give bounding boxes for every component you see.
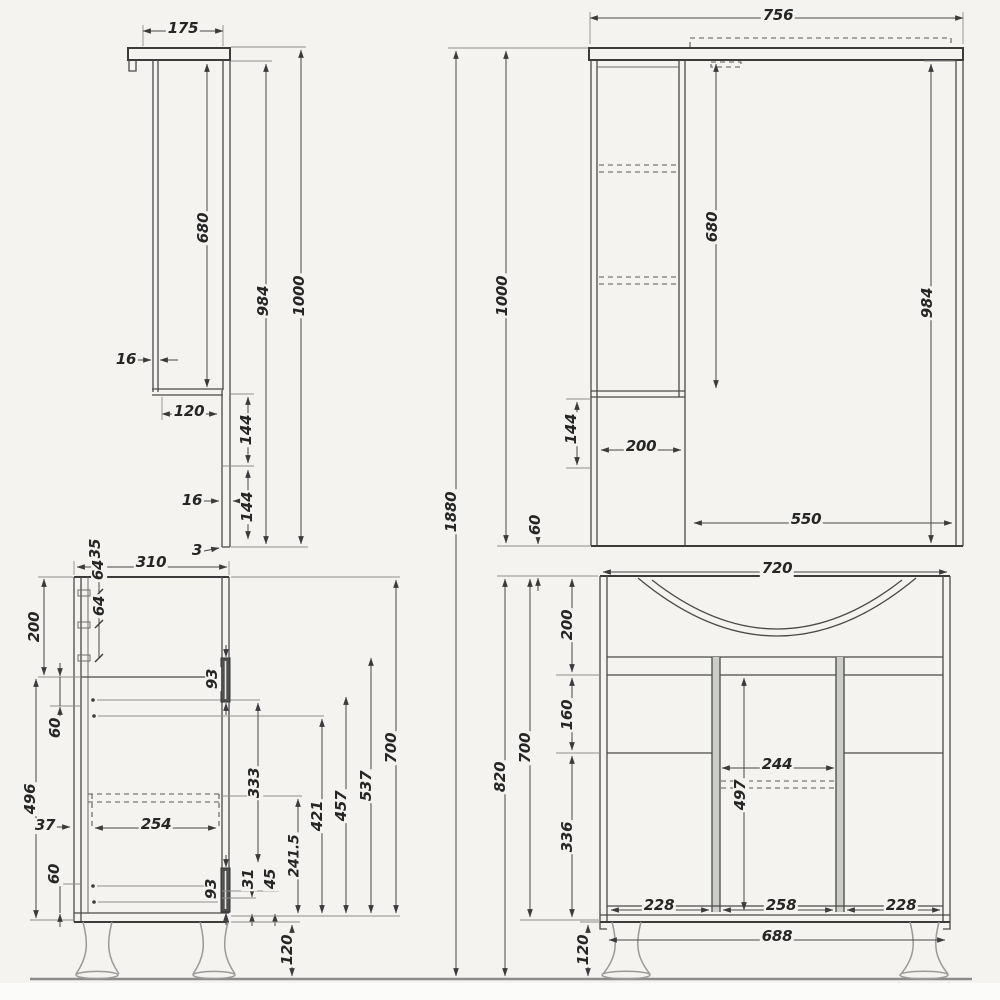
dim-vs-gap-60-upper: 60 [48,716,64,740]
dim-ms-wall-thickness: 16 [114,352,138,368]
dim-vs-top-section: 200 [27,610,43,644]
dim-set-total-height: 1880 [444,490,460,535]
dim-vs-333: 333 [247,766,263,800]
dim-vs-drawer-depth: 254 [139,817,173,833]
dim-mf-cabinet-width: 200 [624,439,658,455]
vanity-side-view [30,552,400,979]
dim-mf-width: 756 [761,8,795,24]
dim-vs-hinge-top: 93 [205,667,221,691]
drawing-linework [0,0,1000,1000]
dim-ms-width: 175 [166,21,200,37]
dim-ms-cabinet-height: 680 [196,211,212,245]
dim-vs-496: 496 [23,782,39,816]
dim-vs-31: 31 [241,867,257,891]
dim-mf-below-cabinet: 144 [564,412,580,446]
dim-vf-door-height: 497 [733,778,749,812]
dim-vf-door-left: 228 [642,898,676,914]
dim-ms-bottom-gap: 3 [190,543,204,559]
technical-drawing-canvas: 175 680 984 1000 16 120 144 16 144 3 756… [0,0,1000,1000]
dim-vf-door-right: 228 [884,898,918,914]
dim-vf-width: 720 [760,561,794,577]
dim-vs-64b: 64 [92,594,108,618]
dim-mf-total-height: 1000 [495,274,511,319]
dim-vs-height: 700 [384,731,400,765]
dim-ms-offset-1: 144 [239,413,255,447]
dim-vs-421: 421 [310,799,326,833]
dim-vs-37: 37 [33,818,57,834]
dim-vf-center-width: 244 [760,757,794,773]
dim-vs-hinge-bottom: 93 [204,877,220,901]
mirror-cabinet-side-view [128,25,308,551]
dim-ms-panel-thickness: 16 [180,493,204,509]
dim-ms-total-height: 1000 [292,274,308,319]
dim-vs-leg-height: 120 [280,933,296,967]
dim-ms-offset-2: 144 [240,490,256,524]
dim-vs-537: 537 [359,769,375,803]
dim-vs-depth: 310 [134,555,168,571]
dim-mf-gap: 60 [528,513,544,537]
dim-vs-241-5: 241.5 [288,833,303,880]
dim-vf-cabinet-height: 700 [518,731,534,765]
dim-vf-section-160: 160 [560,698,576,732]
dim-vs-45: 45 [263,867,279,891]
dim-vf-section-200: 200 [560,608,576,642]
dim-vf-total-height: 820 [493,760,509,794]
dim-mf-mirror-width: 550 [789,512,823,528]
mirror-cabinet-front-view [448,12,963,976]
dim-vf-door-center: 258 [764,898,798,914]
dim-vs-64a: 64 [91,558,107,582]
dim-vf-leg-span: 688 [760,929,794,945]
dim-ms-bottom-depth: 120 [172,404,206,420]
dim-ms-mirror-height: 984 [256,284,272,318]
dim-vs-457: 457 [334,789,350,823]
dim-vs-gap-60-lower: 60 [47,862,63,886]
dim-mf-cabinet-height: 680 [705,210,721,244]
dim-vf-leg-height: 120 [576,933,592,967]
dim-vf-section-336: 336 [560,820,576,854]
dim-mf-mirror-height: 984 [920,286,936,320]
